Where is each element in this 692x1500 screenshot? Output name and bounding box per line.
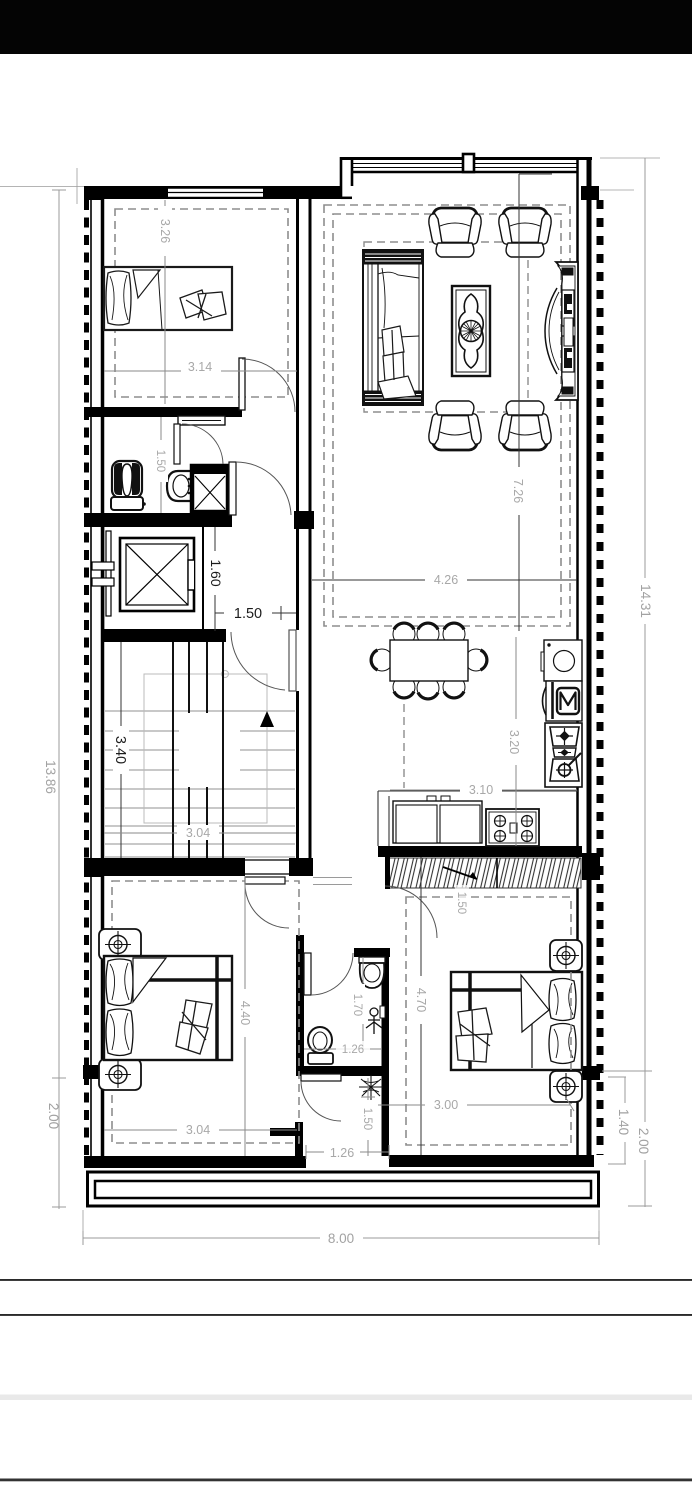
svg-text:3.26: 3.26	[158, 219, 172, 243]
svg-text:1.70: 1.70	[351, 994, 363, 1016]
svg-text:4.40: 4.40	[238, 1001, 252, 1025]
svg-text:4.26: 4.26	[434, 573, 458, 587]
svg-text:14.31: 14.31	[638, 584, 653, 618]
svg-text:4.70: 4.70	[414, 988, 428, 1012]
svg-text:3.14: 3.14	[188, 360, 212, 374]
svg-text:2.00: 2.00	[46, 1103, 61, 1129]
svg-text:1.50: 1.50	[361, 1108, 373, 1130]
svg-text:1.40: 1.40	[616, 1109, 631, 1135]
svg-text:3.04: 3.04	[186, 826, 210, 840]
svg-text:1.50: 1.50	[154, 450, 166, 472]
svg-text:1.50: 1.50	[455, 892, 467, 914]
svg-text:3.40: 3.40	[112, 736, 128, 764]
svg-text:2.00: 2.00	[636, 1128, 651, 1154]
svg-text:3.00: 3.00	[434, 1098, 458, 1112]
svg-text:1.50: 1.50	[234, 606, 262, 622]
svg-text:3.10: 3.10	[469, 783, 493, 797]
svg-text:13.86: 13.86	[43, 760, 58, 794]
svg-text:1.26: 1.26	[342, 1044, 364, 1056]
svg-text:3.04: 3.04	[186, 1123, 210, 1137]
svg-text:1.26: 1.26	[330, 1146, 354, 1160]
svg-text:1.60: 1.60	[208, 559, 224, 586]
svg-text:3.20: 3.20	[507, 730, 521, 754]
svg-text:8.00: 8.00	[328, 1231, 354, 1246]
svg-text:7.26: 7.26	[511, 479, 525, 503]
